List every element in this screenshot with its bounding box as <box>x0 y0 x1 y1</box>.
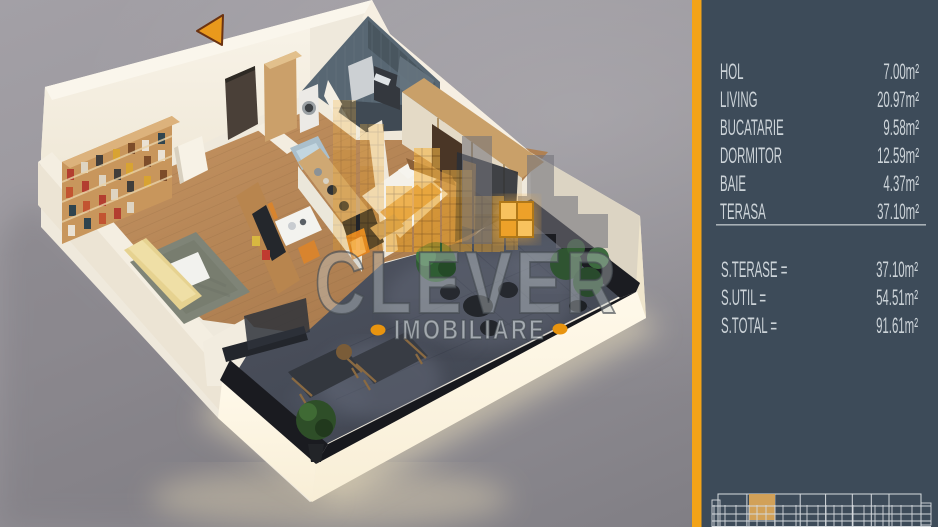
svg-text:BUCATARIE: BUCATARIE <box>720 115 784 140</box>
svg-text:S.TERASE =: S.TERASE = <box>721 257 787 282</box>
svg-text:54.51m²: 54.51m² <box>876 285 918 310</box>
svg-text:HOL: HOL <box>720 59 744 84</box>
svg-text:IMOBILIARE: IMOBILIARE <box>394 314 546 345</box>
svg-text:37.10m²: 37.10m² <box>876 257 918 282</box>
svg-text:4.37m²: 4.37m² <box>883 171 919 196</box>
svg-text:S.TOTAL =: S.TOTAL = <box>721 313 777 338</box>
svg-text:DORMITOR: DORMITOR <box>720 143 782 168</box>
svg-text:7.00m²: 7.00m² <box>883 59 919 84</box>
svg-text:20.97m²: 20.97m² <box>877 87 919 112</box>
svg-text:BAIE: BAIE <box>720 171 746 196</box>
svg-text:S.UTIL =: S.UTIL = <box>721 285 766 310</box>
svg-text:12.59m²: 12.59m² <box>877 143 919 168</box>
svg-text:37.10m²: 37.10m² <box>877 199 919 224</box>
svg-text:TERASA: TERASA <box>720 199 766 224</box>
svg-text:LIVING: LIVING <box>720 87 757 112</box>
svg-text:9.58m²: 9.58m² <box>883 115 919 140</box>
svg-text:91.61m²: 91.61m² <box>876 313 918 338</box>
